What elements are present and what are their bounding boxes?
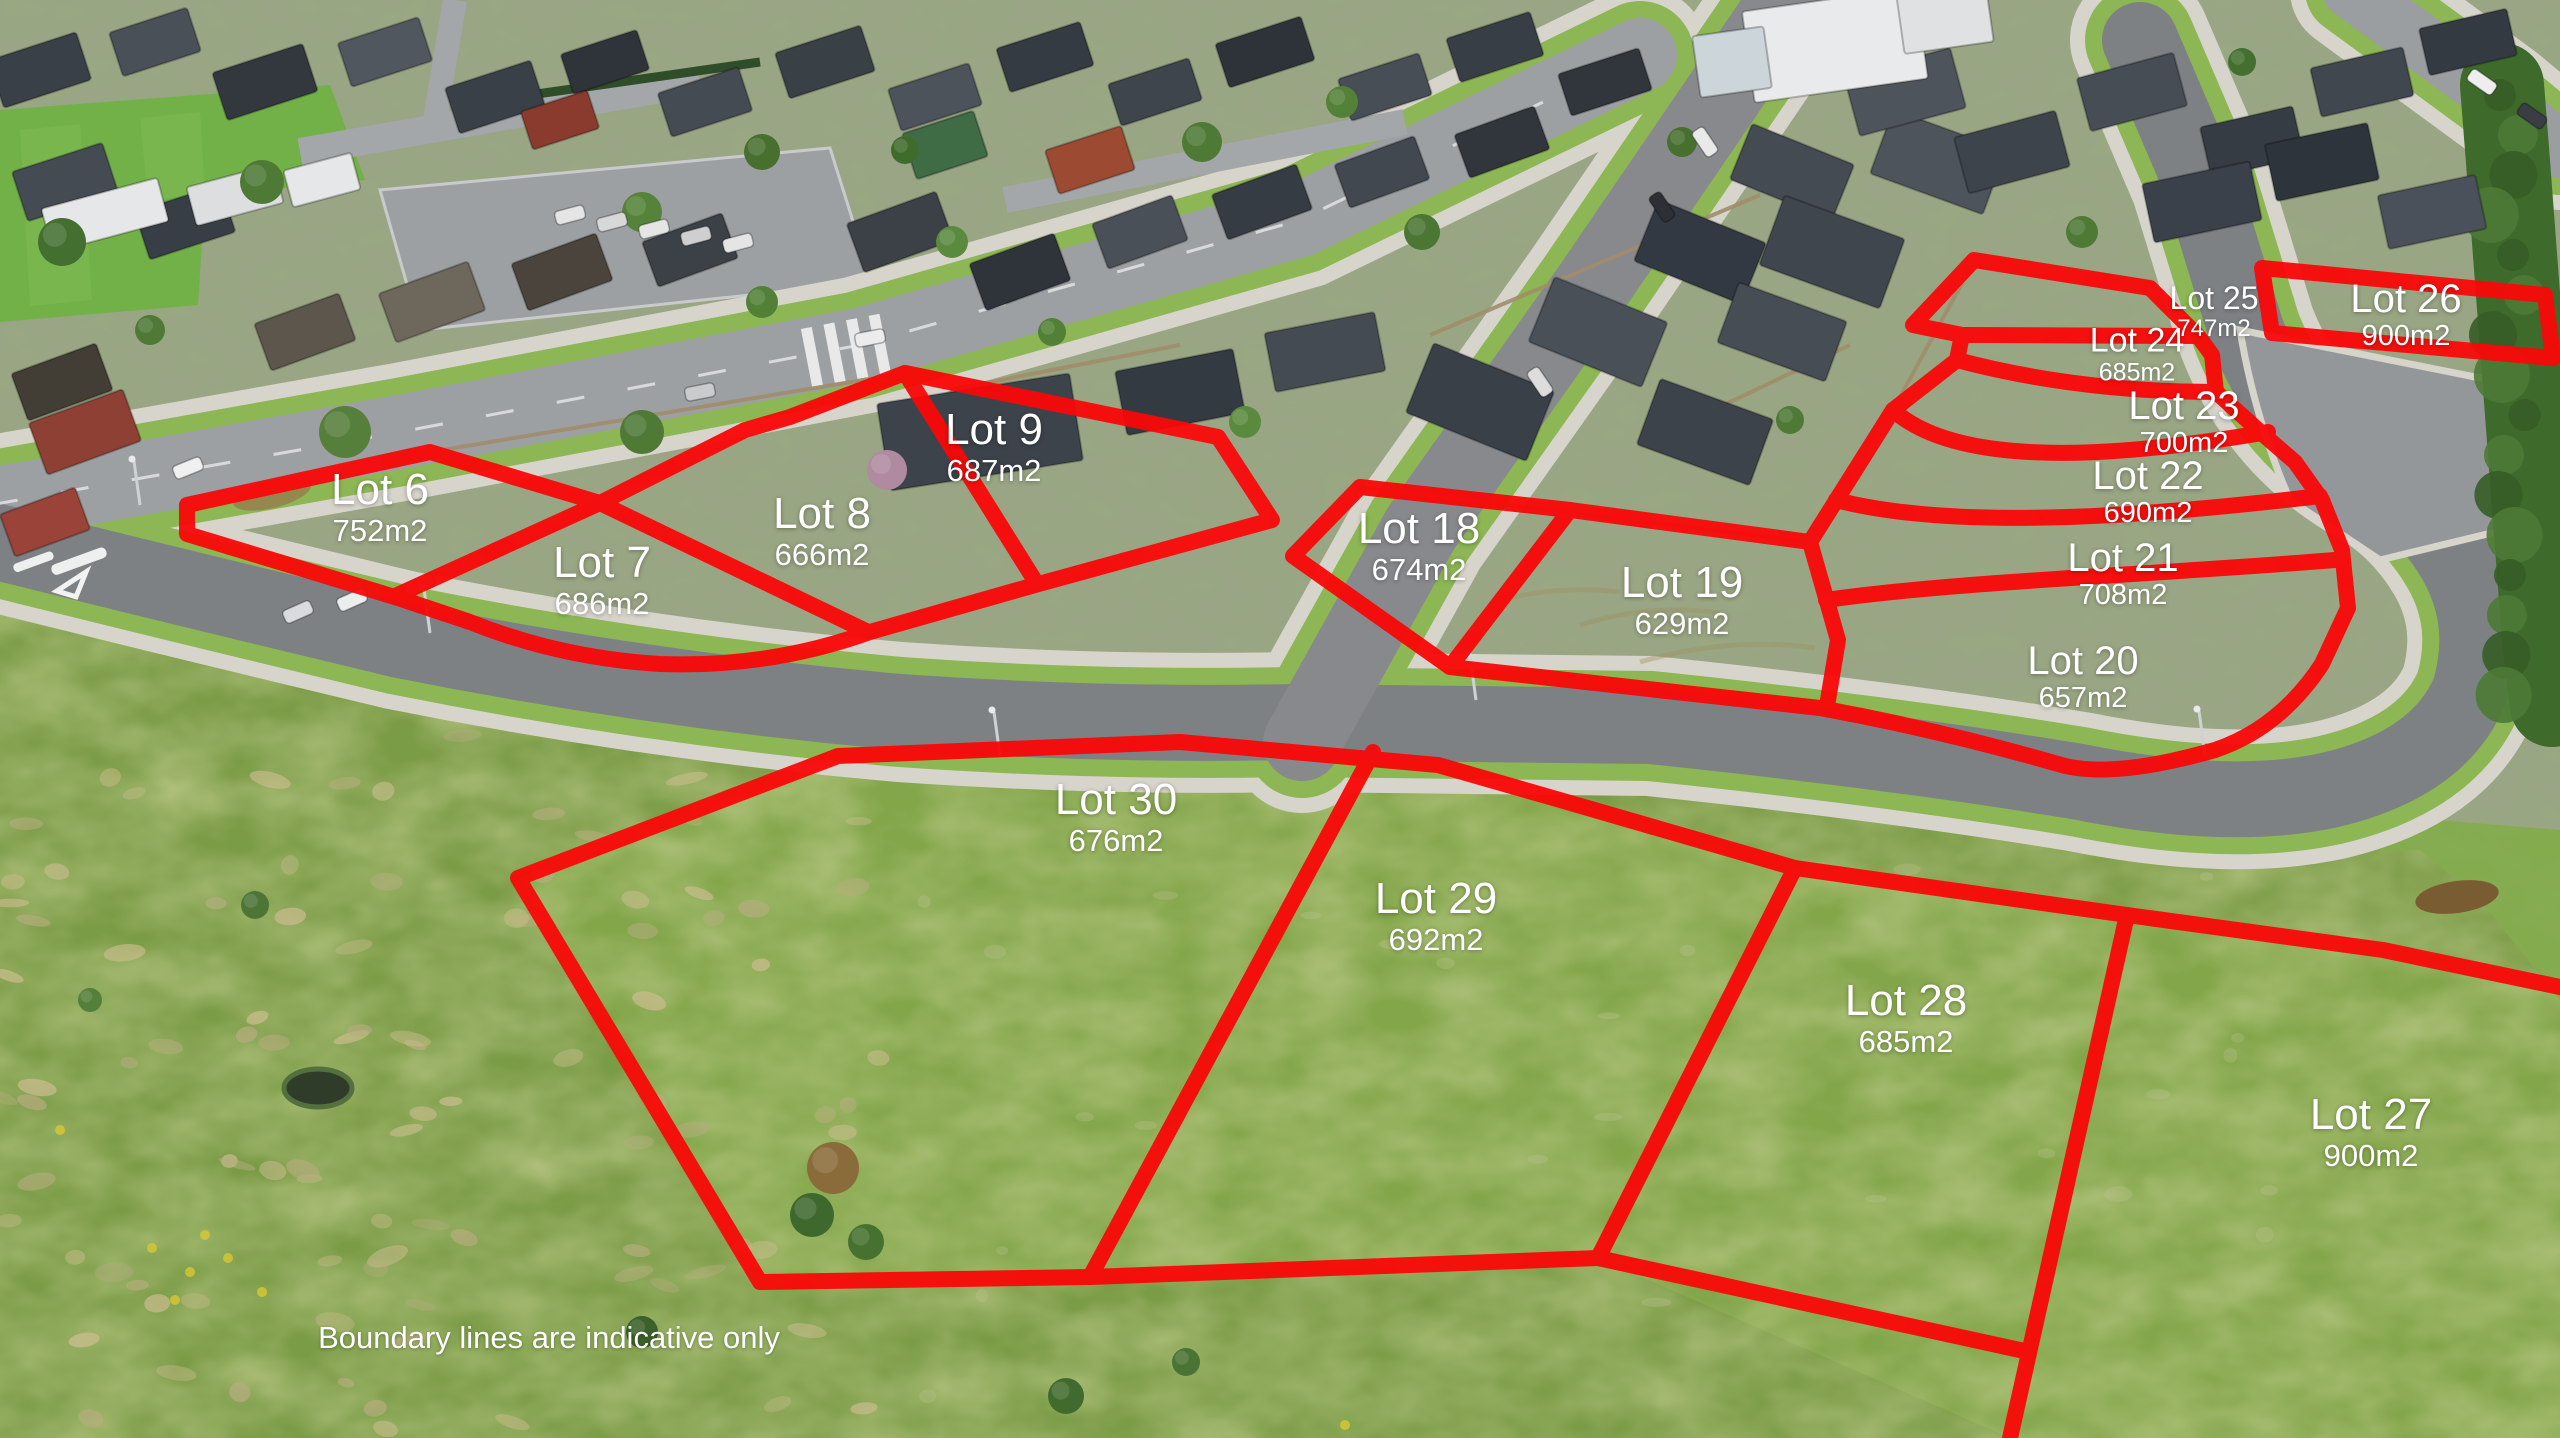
aerial-photo-canvas: [0, 0, 2560, 1438]
lot-label-18: Lot 18674m2: [1358, 505, 1480, 587]
lot-label-27: Lot 27900m2: [2310, 1091, 2432, 1173]
lot-label-25: Lot 25747m2: [2170, 281, 2259, 343]
lot-label-20: Lot 20657m2: [2027, 639, 2138, 715]
disclaimer-text: Boundary lines are indicative only: [318, 1320, 780, 1356]
lot-label-8: Lot 8666m2: [773, 490, 871, 572]
lot-label-22: Lot 22690m2: [2092, 454, 2203, 530]
lot-label-26: Lot 26900m2: [2350, 277, 2461, 353]
lot-label-7: Lot 7686m2: [553, 539, 651, 621]
lot-label-23: Lot 23700m2: [2128, 384, 2239, 460]
lot-label-29: Lot 29692m2: [1375, 875, 1497, 957]
lot-label-6: Lot 6752m2: [331, 466, 429, 548]
lot-label-9: Lot 9687m2: [945, 406, 1043, 488]
pond: [284, 1069, 352, 1107]
lot-label-21: Lot 21708m2: [2067, 536, 2178, 612]
aerial-subdivision-photo: Lot 6752m2 Lot 7686m2 Lot 8666m2 Lot 968…: [0, 0, 2560, 1438]
lot-label-30: Lot 30676m2: [1055, 776, 1177, 858]
lot-label-19: Lot 19629m2: [1621, 559, 1743, 641]
lot-label-28: Lot 28685m2: [1845, 977, 1967, 1059]
